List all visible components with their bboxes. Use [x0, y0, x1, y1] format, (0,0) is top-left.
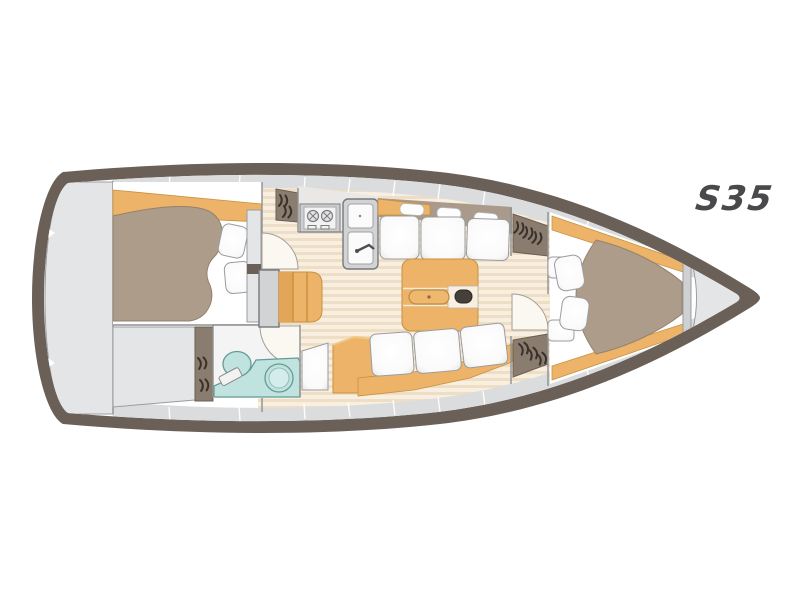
- model-logo-text: S35: [689, 180, 779, 219]
- settee-cushion: [413, 328, 461, 374]
- v-berth-pillow: [553, 254, 585, 292]
- engine-box: [259, 270, 279, 327]
- forward-cabin: [548, 212, 691, 384]
- mast-post-knob: [455, 290, 472, 303]
- companionway-step-tread: [279, 272, 293, 322]
- bow-bulkhead: [683, 259, 691, 337]
- settee-cushion: [370, 332, 415, 377]
- galley-sink: [343, 199, 378, 269]
- salon-table: [402, 259, 478, 331]
- starboard-settee: [378, 198, 512, 261]
- galley-stove: [300, 204, 340, 232]
- settee-cushion: [460, 322, 509, 368]
- head: [213, 325, 300, 398]
- settee-cushion: [421, 217, 465, 260]
- v-berth-pillow: [559, 295, 590, 331]
- boat-floor-plan: S35: [0, 0, 800, 600]
- cockpit-locker-hatch: [195, 327, 213, 401]
- cockpit-locker-panel: [113, 327, 195, 407]
- interior: [45, 174, 743, 422]
- nav-seat: [302, 343, 328, 390]
- model-logo: S35: [689, 180, 779, 219]
- settee-cushion: [466, 218, 509, 260]
- cockpit-locker: [113, 327, 213, 407]
- settee-cushion: [380, 216, 419, 259]
- head-sink-basin: [269, 368, 289, 388]
- backrest-cushion-top: [400, 203, 425, 216]
- aft-berth: [113, 207, 223, 321]
- swim-platform: [45, 181, 113, 414]
